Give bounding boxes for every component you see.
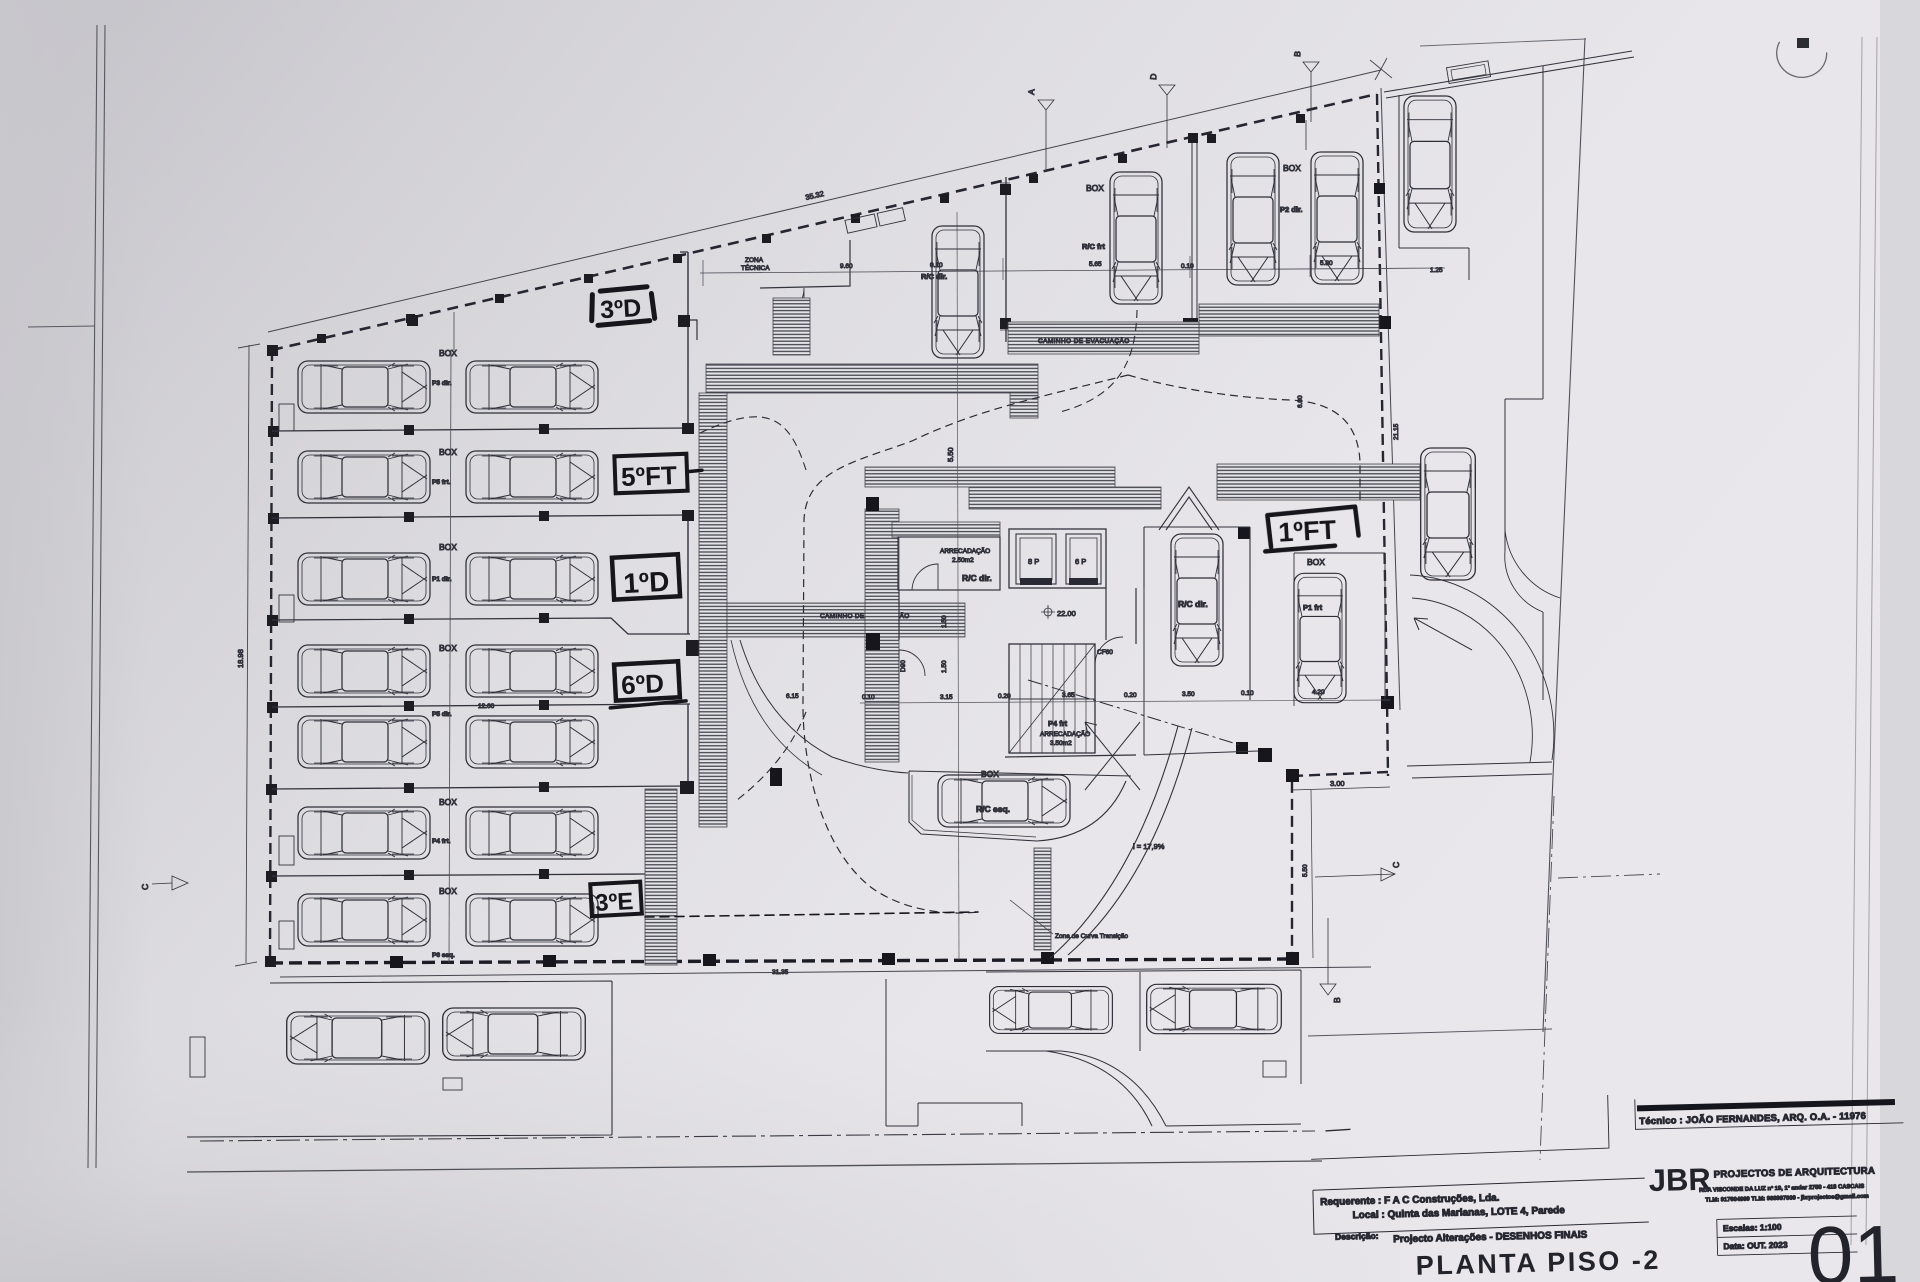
svg-text:31.35: 31.35: [772, 969, 789, 976]
svg-text:P4 frt.: P4 frt.: [432, 838, 451, 845]
svg-text:R/C dir.: R/C dir.: [1178, 599, 1208, 609]
svg-text:2.50m2: 2.50m2: [952, 557, 974, 564]
svg-text:22.00: 22.00: [1057, 609, 1076, 618]
svg-text:01: 01: [1807, 1209, 1900, 1282]
svg-text:C: C: [1391, 862, 1401, 868]
svg-text:5.65: 5.65: [1089, 261, 1102, 268]
svg-text:0.20: 0.20: [998, 693, 1011, 700]
svg-text:P5 dir.: P5 dir.: [432, 711, 452, 718]
svg-text:ARRECADAÇÃO: ARRECADAÇÃO: [1040, 729, 1090, 738]
svg-text:ARRECADAÇÃO: ARRECADAÇÃO: [940, 546, 990, 555]
svg-text:Data: OUT. 2023: Data: OUT. 2023: [1723, 1240, 1788, 1252]
svg-text:1ºFT: 1ºFT: [1278, 515, 1338, 548]
svg-text:CAMINHO DE EVACUAÇÃO: CAMINHO DE EVACUAÇÃO: [1038, 336, 1130, 345]
svg-text:BOX: BOX: [1307, 557, 1325, 567]
svg-text:R/C dir.: R/C dir.: [962, 573, 992, 583]
svg-text:5ºFT: 5ºFT: [621, 460, 678, 492]
svg-text:8 P: 8 P: [1028, 557, 1039, 566]
svg-text:P3 dir.: P3 dir.: [432, 380, 452, 387]
svg-text:3.50m2: 3.50m2: [1050, 740, 1072, 747]
svg-text:P6 esq.: P6 esq.: [432, 952, 455, 959]
svg-text:1.50: 1.50: [941, 615, 948, 628]
svg-text:P4 frt: P4 frt: [1048, 719, 1068, 728]
svg-text:3ºD: 3ºD: [599, 294, 642, 324]
svg-text:0.20: 0.20: [1124, 692, 1137, 699]
svg-text:BOX: BOX: [439, 643, 457, 653]
svg-text:3.65: 3.65: [1062, 692, 1075, 699]
svg-text:3.00: 3.00: [1330, 779, 1345, 788]
svg-text:3.50: 3.50: [1182, 691, 1195, 698]
svg-text:6.15: 6.15: [786, 693, 799, 700]
svg-text:Descrição:: Descrição:: [1335, 1231, 1379, 1242]
svg-text:R/C dir.: R/C dir.: [921, 272, 947, 281]
svg-text:BOX: BOX: [439, 348, 457, 358]
svg-text:D90: D90: [900, 660, 907, 672]
svg-text:6ºD: 6ºD: [620, 668, 664, 700]
svg-text:21.15: 21.15: [1393, 423, 1400, 440]
svg-text:3ºE: 3ºE: [595, 888, 634, 917]
svg-text:D: D: [1148, 73, 1158, 80]
svg-text:1.50: 1.50: [941, 660, 948, 673]
svg-text:6 P: 6 P: [1075, 557, 1086, 566]
svg-text:i = 17,9%: i = 17,9%: [1133, 842, 1165, 851]
svg-text:12.60: 12.60: [478, 703, 495, 710]
svg-text:9.60: 9.60: [840, 263, 853, 270]
svg-text:0.10: 0.10: [862, 694, 875, 701]
svg-text:0.10: 0.10: [1241, 690, 1254, 697]
svg-text:BOX: BOX: [1086, 183, 1104, 193]
svg-text:ZONA: ZONA: [745, 257, 764, 264]
svg-text:C: C: [140, 884, 150, 890]
svg-text:TÉCNICA: TÉCNICA: [741, 263, 770, 272]
svg-text:B: B: [1332, 997, 1342, 1003]
svg-text:PLANTA PISO -2: PLANTA PISO -2: [1415, 1245, 1661, 1281]
svg-text:R/C esq.: R/C esq.: [976, 804, 1010, 814]
svg-text:R/C frt: R/C frt: [1082, 242, 1105, 251]
svg-text:5.50: 5.50: [946, 447, 955, 462]
svg-text:P2 dir.: P2 dir.: [1280, 205, 1303, 214]
svg-text:BOX: BOX: [439, 797, 457, 807]
svg-text:BOX: BOX: [439, 886, 457, 896]
svg-text:BOX: BOX: [1283, 163, 1301, 173]
svg-text:P1 frt: P1 frt: [1303, 603, 1323, 612]
svg-text:Zona de Curva Transição: Zona de Curva Transição: [1055, 933, 1128, 940]
svg-text:3.15: 3.15: [940, 694, 953, 701]
svg-text:P5 frt.: P5 frt.: [432, 479, 451, 486]
svg-text:Escalas: 1:100: Escalas: 1:100: [1723, 1222, 1782, 1233]
svg-text:18.98: 18.98: [236, 649, 245, 668]
svg-text:CF60: CF60: [1097, 649, 1113, 656]
svg-text:1.25: 1.25: [1430, 267, 1443, 274]
svg-text:BOX: BOX: [439, 542, 457, 552]
svg-text:BOX: BOX: [981, 769, 999, 779]
svg-text:1ºD: 1ºD: [623, 566, 671, 599]
svg-text:P1 dir.: P1 dir.: [432, 576, 452, 583]
svg-text:BOX: BOX: [439, 447, 457, 457]
svg-text:5.50: 5.50: [1302, 864, 1309, 877]
